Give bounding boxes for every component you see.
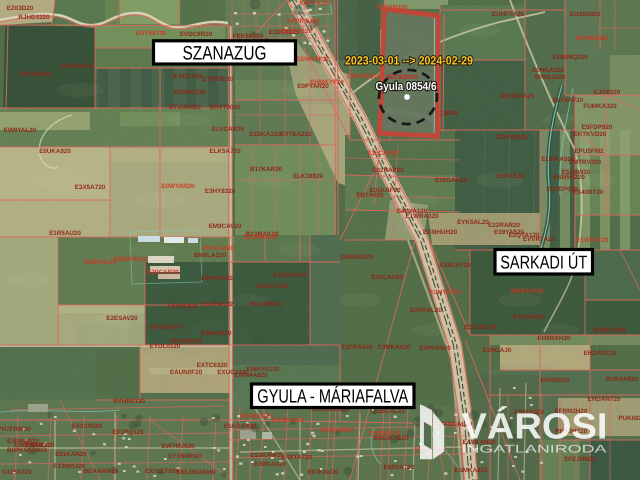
svg-text:VÁROSI: VÁROSI (462, 406, 608, 447)
svg-text:Gyula 0854/6: Gyula 0854/6 (376, 81, 437, 93)
svg-text:SARKADI ÚT: SARKADI ÚT (500, 251, 587, 272)
svg-text:EEC83R20: EEC83R20 (386, 74, 418, 81)
svg-text:2023-03-01 --> 2024-02-29: 2023-03-01 --> 2024-02-29 (345, 54, 473, 68)
svg-text:SZANAZUG: SZANAZUG (183, 42, 267, 64)
svg-text:GYULA - MÁRIAFALVA: GYULA - MÁRIAFALVA (257, 386, 408, 408)
svg-text:INGATLANIRODA: INGATLANIRODA (462, 444, 608, 456)
